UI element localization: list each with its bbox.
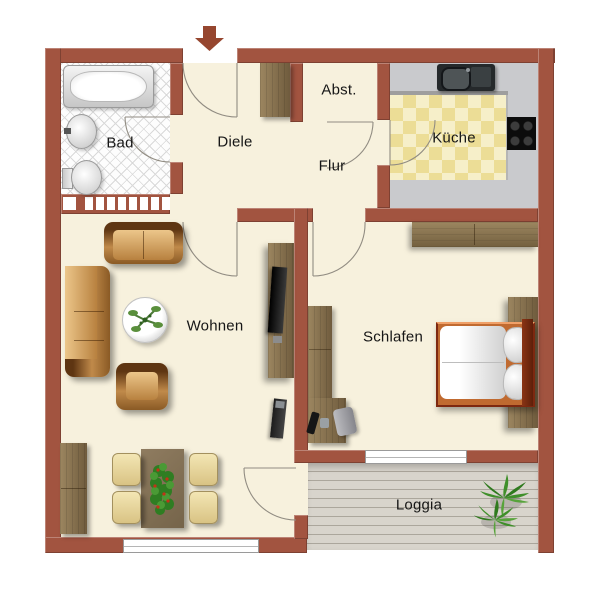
- dining-chair: [112, 491, 141, 524]
- washbasin-tap: [64, 128, 71, 134]
- stove: [507, 117, 536, 150]
- sink-tap: [466, 68, 470, 72]
- sofa-cushion-divider: [74, 311, 104, 312]
- room-label-schlafen: Schlafen: [363, 329, 423, 346]
- dining-table: [141, 449, 184, 528]
- room-label-diele: Diele: [217, 134, 252, 151]
- coffee-table: [122, 297, 168, 343]
- entrance-door-arc: [183, 63, 237, 117]
- wohnen-sideboard: [60, 443, 87, 534]
- sofa-3-seat-cushions: [65, 266, 97, 359]
- sofa-2-seat: [104, 222, 183, 264]
- sofa-cushion-divider: [74, 340, 104, 341]
- loggia-door-arc: [244, 468, 296, 520]
- stereo-rack-top: [275, 401, 285, 409]
- dining-chair: [189, 491, 218, 524]
- wardrobe-divider: [474, 224, 475, 245]
- sink-drainer: [471, 67, 491, 87]
- desk-divider: [309, 349, 331, 350]
- desk-accessory: [320, 418, 329, 428]
- armchair-cushion: [126, 372, 158, 400]
- sofa-3-seat: [65, 266, 110, 377]
- wohnen-door-arc: [183, 222, 237, 276]
- double-bed: [436, 322, 535, 407]
- dining-chair: [112, 453, 141, 486]
- sofa-cushion-divider: [143, 231, 144, 259]
- loggia-plant: [468, 472, 540, 544]
- kueche-door-arc: [390, 120, 435, 165]
- room-label-abst: Abst.: [321, 82, 356, 99]
- room-label-loggia: Loggia: [396, 497, 442, 514]
- room-label-flur: Flur: [319, 158, 346, 175]
- bathtub: [63, 65, 154, 108]
- tv-foot: [273, 336, 282, 343]
- schlafen-door-arc: [313, 222, 365, 276]
- diele-wardrobe: [260, 63, 290, 117]
- bed-duvet: [440, 326, 506, 399]
- entrance-arrow-icon: [195, 26, 224, 51]
- schlafen-wardrobe: [412, 222, 538, 247]
- dining-chair: [189, 453, 218, 486]
- bathtub-basin: [70, 71, 147, 102]
- toilet: [62, 160, 102, 196]
- dining-table-plant: [141, 449, 184, 528]
- armchair: [116, 363, 168, 410]
- bed-headboard: [522, 319, 533, 406]
- room-label-bad: Bad: [106, 135, 133, 152]
- washbasin: [66, 114, 97, 149]
- desk-upper: [308, 306, 332, 398]
- kitchen-sink-unit: [437, 64, 495, 91]
- sideboard-divider: [61, 488, 86, 489]
- room-label-kueche: Küche: [432, 130, 476, 147]
- floor-plan: Bad Diele Abst. Flur Küche Wohnen Schlaf…: [0, 0, 600, 600]
- coffee-table-plant: [123, 298, 167, 342]
- duvet-seam: [442, 362, 504, 363]
- toilet-bowl: [71, 160, 102, 195]
- room-label-wohnen: Wohnen: [187, 318, 244, 335]
